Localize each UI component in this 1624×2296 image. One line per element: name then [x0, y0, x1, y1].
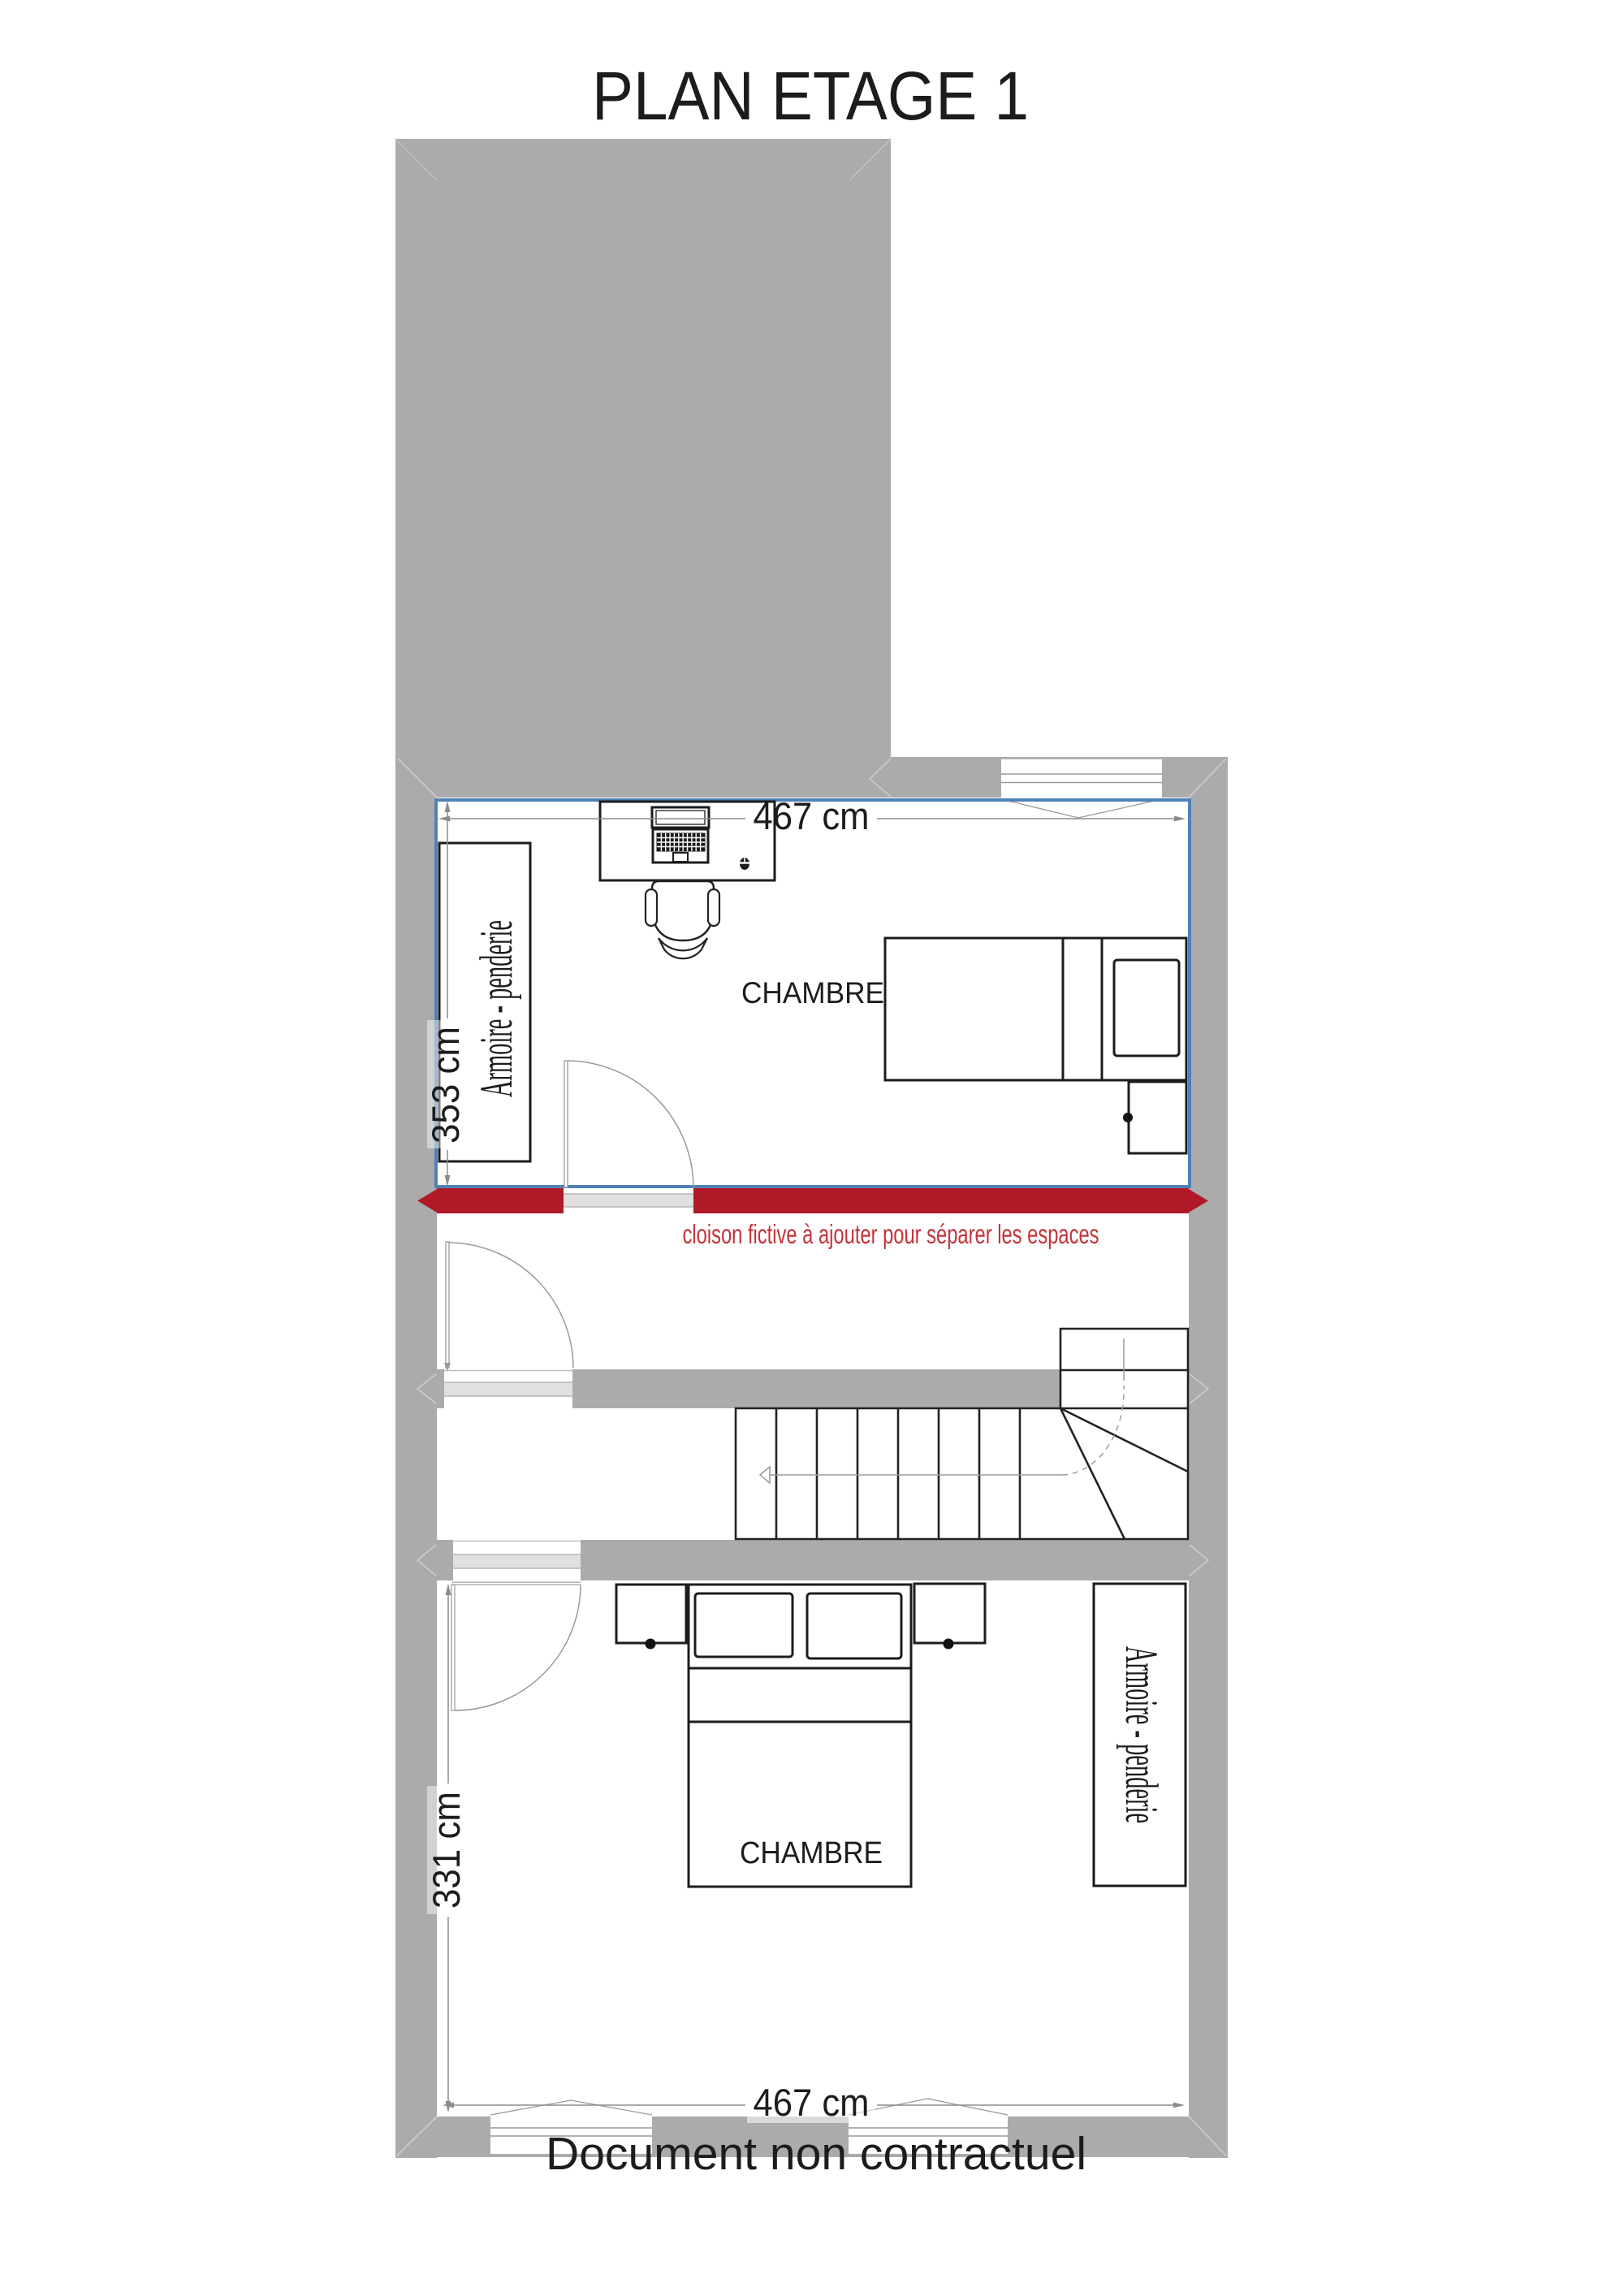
svg-text:331 cm: 331 cm: [425, 1792, 468, 1909]
svg-text:CHAMBRE: CHAMBRE: [741, 976, 884, 1010]
svg-text:353 cm: 353 cm: [424, 1027, 467, 1144]
svg-text:Document non contractuel: Document non contractuel: [546, 2128, 1086, 2180]
svg-text:Armoire - penderie: Armoire - penderie: [471, 920, 522, 1097]
svg-text:PLAN ETAGE 1: PLAN ETAGE 1: [592, 58, 1029, 134]
svg-text:Armoire - penderie: Armoire - penderie: [1116, 1646, 1167, 1823]
svg-text:467 cm: 467 cm: [754, 2081, 870, 2124]
svg-text:467 cm: 467 cm: [754, 794, 870, 837]
svg-text:CHAMBRE: CHAMBRE: [740, 1836, 883, 1870]
svg-text:cloison fictive à ajouter pour: cloison fictive à ajouter pour séparer l…: [683, 1219, 1099, 1249]
